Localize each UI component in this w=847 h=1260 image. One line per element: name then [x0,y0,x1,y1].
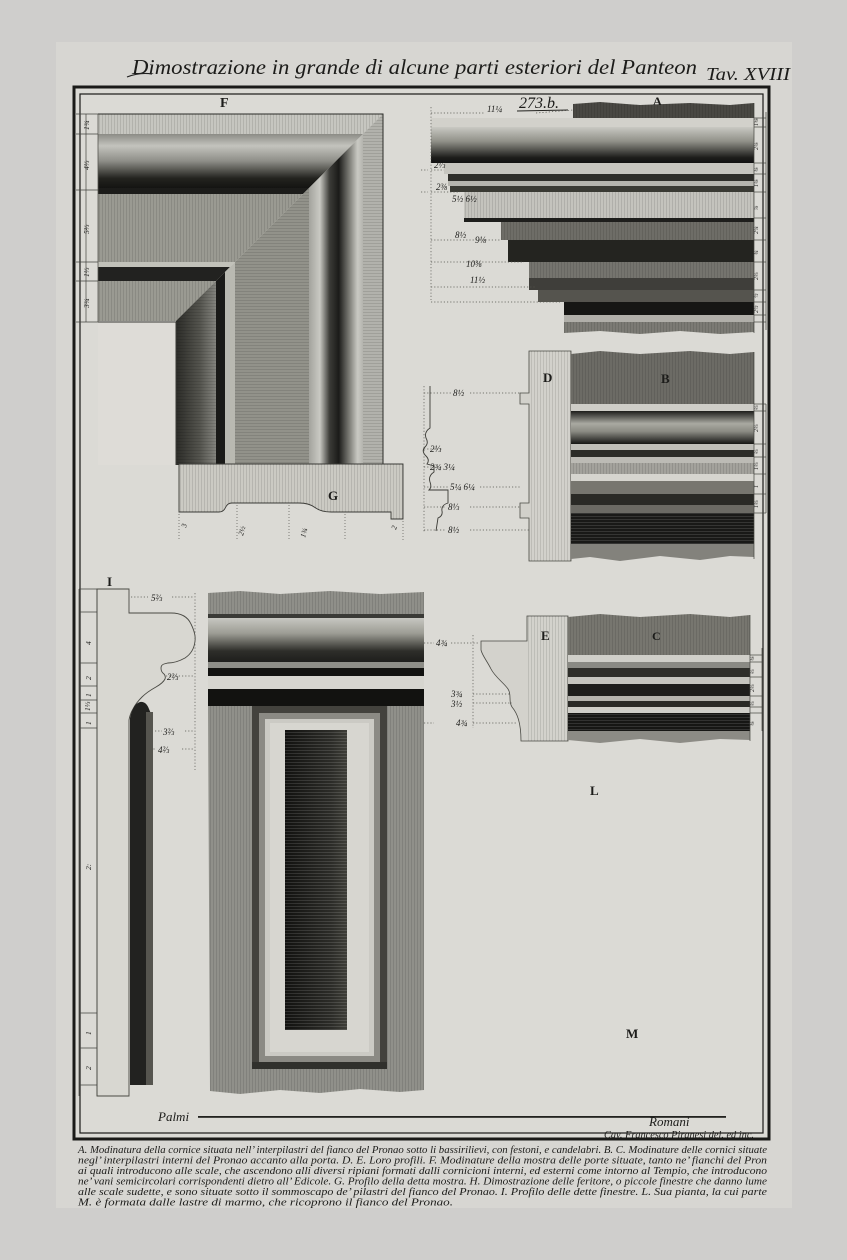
svg-text:F: F [220,96,229,111]
svg-text:5½ 6½: 5½ 6½ [452,194,477,204]
svg-text:2⅛: 2⅛ [754,142,760,150]
svg-text:Cav. Francesco Piranesi del. e: Cav. Francesco Piranesi del. ed inc. [604,1130,754,1141]
svg-text:3⅔: 3⅔ [162,727,175,737]
svg-text:alle scale sudette, e sono sit: alle scale sudette, e sono situate sotto… [78,1187,767,1198]
svg-text:10⅜: 10⅜ [466,259,482,269]
svg-text:4⅓: 4⅓ [82,160,91,170]
svg-text:3½: 3½ [450,699,463,709]
svg-text:273.b.: 273.b. [519,95,559,112]
svg-text:1⅝: 1⅝ [754,118,760,126]
svg-text:11½: 11½ [470,275,485,285]
svg-text:8⅓: 8⅓ [448,502,460,512]
svg-text:2⅔: 2⅔ [167,672,179,682]
svg-text:9⅛: 9⅛ [475,235,487,245]
svg-text:2⅓: 2⅓ [430,444,442,454]
svg-text:5⅔: 5⅔ [82,224,91,234]
svg-text:5¼ 6¼: 5¼ 6¼ [450,482,475,492]
svg-text:negl’ interpilastri interni de: negl’ interpilastri interni del Pronao a… [78,1156,767,1167]
svg-text:G: G [328,488,338,503]
svg-text:4¾: 4¾ [436,638,448,648]
svg-text:¾: ¾ [754,250,760,255]
svg-text:A: A [653,94,662,108]
svg-text:2⅜: 2⅜ [436,182,448,192]
svg-text:1⅓: 1⅓ [82,267,91,277]
svg-text:11¼: 11¼ [487,104,502,114]
svg-text:⅜: ⅜ [750,656,756,661]
svg-text:4¾: 4¾ [456,718,468,728]
svg-text:2¾ 3¼: 2¾ 3¼ [430,462,455,472]
svg-text:½: ½ [753,293,760,298]
svg-text:ne’ vani semicircolari corrisp: ne’ vani semicircolari corrispondenti di… [78,1177,767,1188]
svg-text:2: 2 [84,1066,93,1070]
svg-text:8½: 8½ [455,230,467,240]
svg-text:M. è formata dalle lastre di m: M. è formata dalle lastre di marmo, che … [77,1198,453,1209]
svg-text:1: 1 [84,721,93,725]
svg-text:3¾: 3¾ [450,689,463,699]
svg-text:Tav. XVIII: Tav. XVIII [706,64,791,84]
svg-text:1¾: 1¾ [82,120,91,130]
svg-text:Palmi: Palmi [157,1109,189,1124]
svg-text:1: 1 [754,485,760,488]
svg-text:1⅓: 1⅓ [754,462,760,470]
svg-text:A. Modinatura della cornice si: A. Modinatura della cornice situata nell… [77,1145,767,1156]
svg-text:2½: 2½ [753,305,760,313]
svg-text:8½: 8½ [448,525,460,535]
svg-text:Dimostrazione in grande di alc: Dimostrazione in grande di alcune parti … [131,55,697,79]
svg-text:E: E [541,628,550,643]
svg-text:4: 4 [84,641,93,645]
svg-text:D: D [543,370,552,385]
svg-text:Romani: Romani [648,1114,690,1129]
svg-text:2⅓: 2⅓ [754,272,760,280]
svg-text:L: L [590,783,599,798]
svg-text:3¾: 3¾ [82,298,91,309]
svg-text:⅜: ⅜ [750,721,756,726]
svg-text:2: 2 [84,676,93,680]
svg-text:⅜: ⅜ [754,167,760,172]
svg-text:5⅔: 5⅔ [151,593,163,603]
svg-text:M: M [626,1026,638,1041]
svg-text:2⅓: 2⅓ [754,424,760,432]
svg-text:⅔: ⅔ [750,669,756,674]
svg-text:1⅛: 1⅛ [754,179,760,187]
svg-text:1⅓: 1⅓ [754,500,760,508]
svg-text:1⅓: 1⅓ [83,701,92,711]
svg-text:I: I [107,574,112,589]
svg-text:⅔: ⅔ [754,449,760,454]
svg-text:2:: 2: [84,864,93,870]
svg-text:1: 1 [84,1031,93,1035]
svg-text:⅔: ⅔ [754,405,760,410]
svg-text:8½: 8½ [453,388,465,398]
svg-text:1: 1 [84,693,93,697]
svg-text:2¼: 2¼ [754,226,760,234]
svg-text:⅓: ⅓ [750,701,756,706]
svg-text:ai quali introducono alle scal: ai quali introducono alle scale, che asc… [78,1166,767,1177]
svg-text:4⅔: 4⅔ [158,745,170,755]
svg-text:B: B [661,371,670,386]
svg-text:⅞: ⅞ [754,205,760,210]
svg-text:C: C [652,629,661,643]
svg-text:2⅓: 2⅓ [434,160,446,170]
svg-text:2⅓: 2⅓ [750,684,756,692]
